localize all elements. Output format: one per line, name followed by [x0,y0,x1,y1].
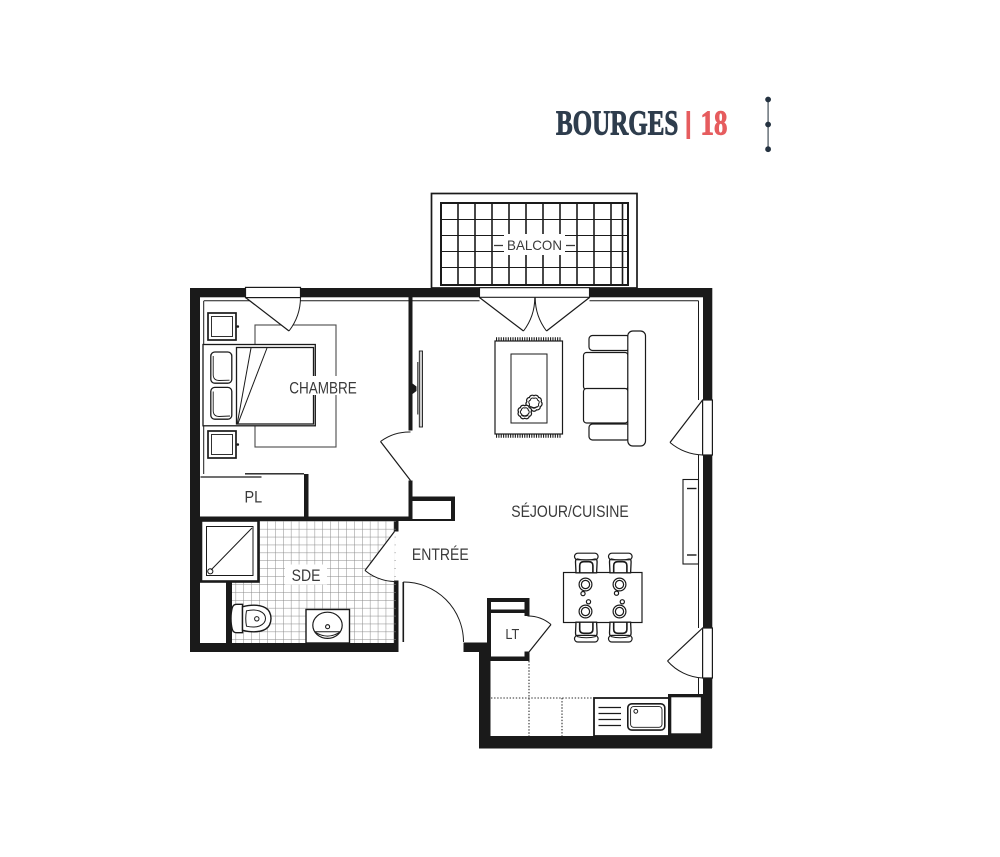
svg-text:ENTRÉE: ENTRÉE [412,546,469,564]
svg-text:SÉJOUR/CUISINE: SÉJOUR/CUISINE [511,503,629,521]
svg-text:CHAMBRE: CHAMBRE [289,379,357,398]
svg-text:BALCON: BALCON [507,238,562,253]
svg-text:BOURGES: BOURGES [556,104,678,143]
svg-text:PL: PL [244,488,262,506]
svg-text:18: 18 [701,103,728,142]
svg-text:SDE: SDE [292,567,321,585]
svg-text:LT: LT [505,625,519,642]
